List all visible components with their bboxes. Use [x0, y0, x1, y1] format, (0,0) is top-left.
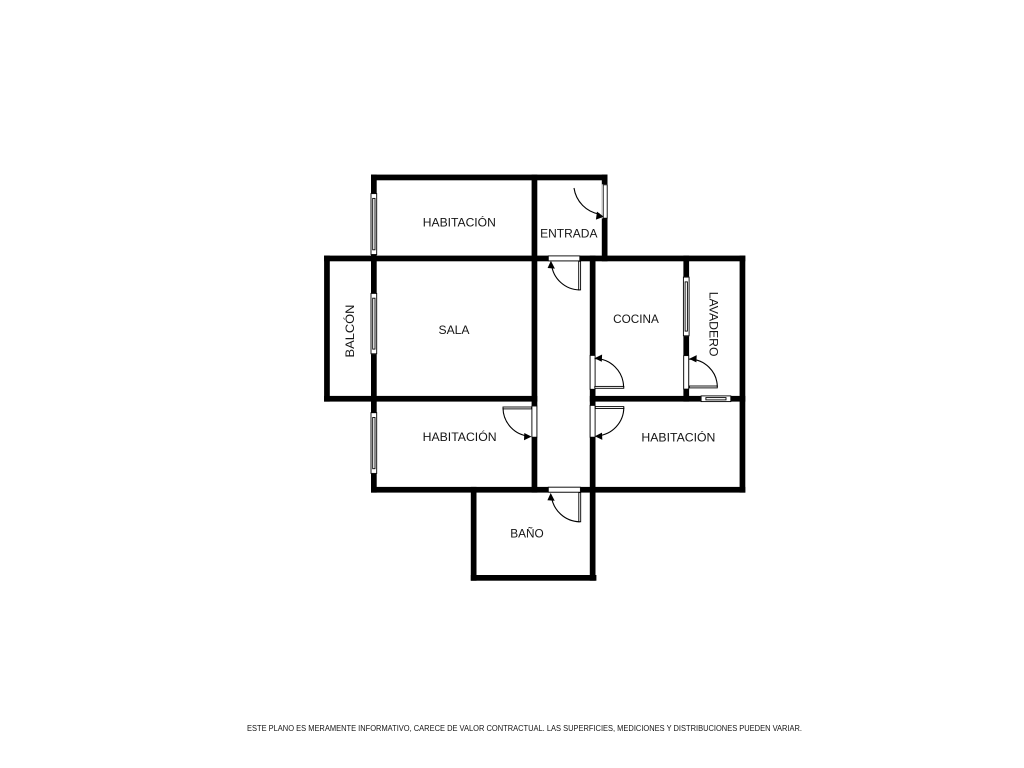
svg-text:HABITACIÓN: HABITACIÓN	[423, 214, 496, 229]
svg-text:LAVADERO: LAVADERO	[706, 292, 720, 357]
svg-text:BAÑO: BAÑO	[510, 527, 544, 541]
svg-text:ENTRADA: ENTRADA	[540, 226, 597, 240]
svg-text:HABITACIÓN: HABITACIÓN	[423, 429, 497, 444]
svg-text:HABITACIÓN: HABITACIÓN	[641, 429, 715, 444]
svg-text:COCINA: COCINA	[613, 312, 659, 326]
svg-text:BALCÓN: BALCÓN	[342, 305, 357, 358]
svg-text:SALA: SALA	[439, 323, 470, 337]
svg-text:ESTE PLANO ES MERAMENTE INFORM: ESTE PLANO ES MERAMENTE INFORMATIVO, CAR…	[247, 724, 802, 733]
